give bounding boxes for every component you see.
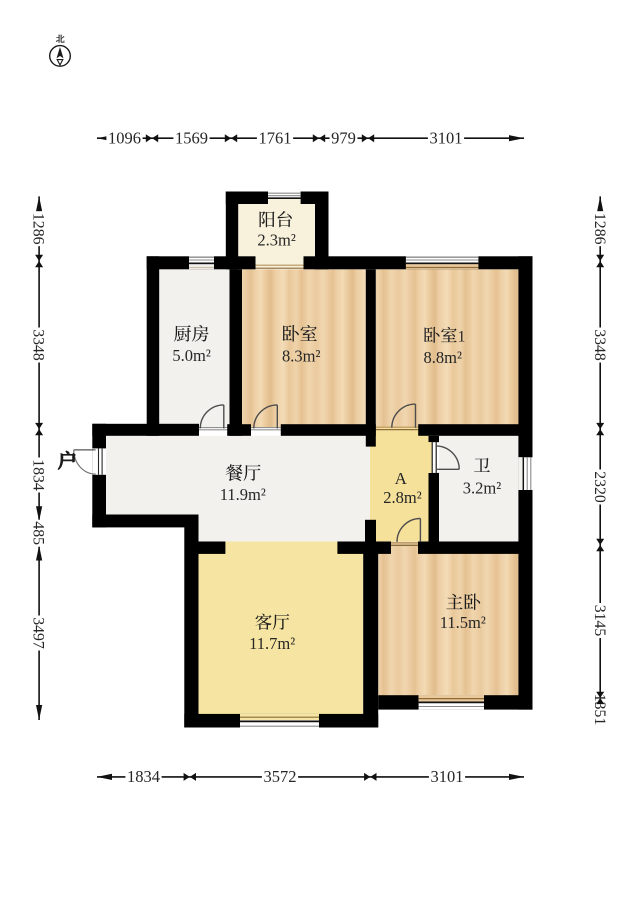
svg-text:3101: 3101 [431,767,464,786]
svg-text:8.3m²: 8.3m² [282,346,320,365]
svg-text:3348: 3348 [30,329,47,361]
svg-text:3145: 3145 [591,605,608,637]
svg-text:3572: 3572 [264,767,297,786]
svg-text:1286: 1286 [591,213,608,245]
svg-text:8.8m²: 8.8m² [423,348,461,367]
svg-text:2.8m²: 2.8m² [383,488,421,507]
svg-text:11.9m²: 11.9m² [220,485,266,504]
svg-text:1351: 1351 [591,694,608,726]
svg-text:3348: 3348 [591,329,608,361]
svg-text:3497: 3497 [30,617,47,649]
svg-text:2.3m²: 2.3m² [257,230,295,249]
svg-text:1286: 1286 [30,213,47,245]
svg-text:1834: 1834 [30,459,47,491]
svg-text:2320: 2320 [591,471,608,503]
svg-text:1834: 1834 [127,767,160,786]
svg-text:1761: 1761 [259,128,292,147]
svg-text:11.5m²: 11.5m² [440,613,486,632]
svg-text:A: A [395,469,408,488]
svg-text:1096: 1096 [108,128,141,147]
svg-text:5.0m²: 5.0m² [172,346,210,365]
svg-text:485: 485 [30,521,47,545]
svg-text:11.7m²: 11.7m² [249,634,295,653]
svg-text:979: 979 [331,128,356,147]
svg-text:1: 1 [458,328,466,345]
svg-text:3101: 3101 [430,128,463,147]
svg-text:1569: 1569 [175,128,208,147]
svg-text:3.2m²: 3.2m² [463,478,501,497]
